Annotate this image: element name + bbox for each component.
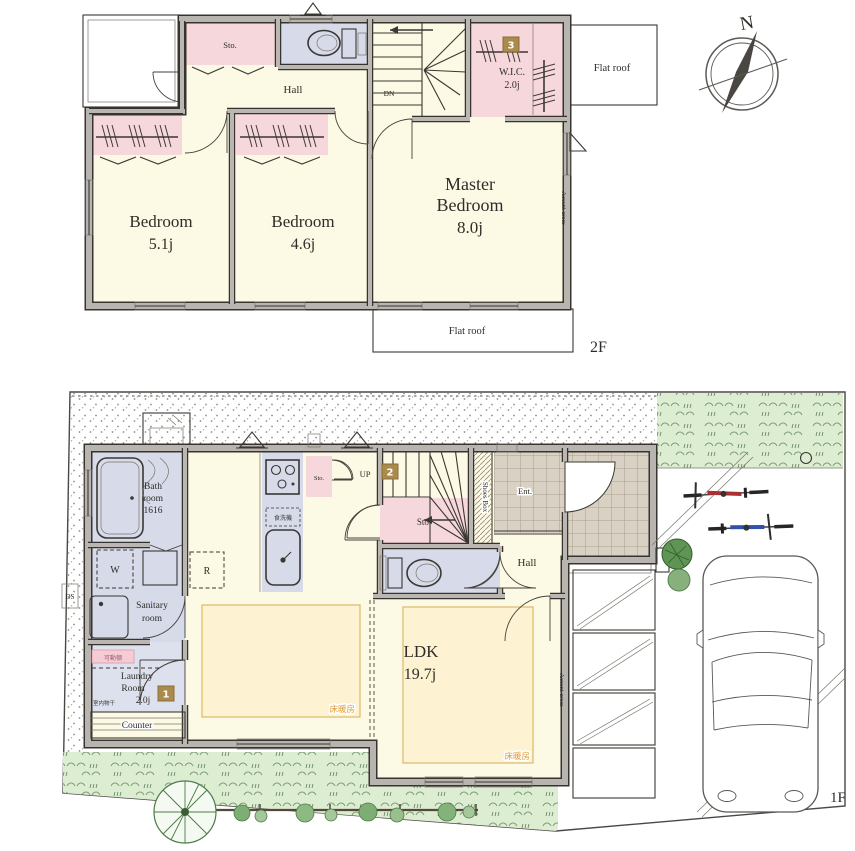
stairs-sto-label: Sto. [417,517,431,527]
sanitary-label-1: Sanitary [136,601,168,611]
flat-roof-bottom-label: Flat roof [449,326,486,337]
floor-plan-2f: Flat roof Flat roof DN [83,3,657,356]
wic-badge-number: 3 [508,41,515,52]
bedroom2-area: 4.6j [291,236,315,253]
1f-hall-label: Hall [518,557,537,569]
floor-heating-left-label: 床暖房 [329,704,355,715]
dn-label: DN [384,89,395,98]
dishwasher-label: 食洗機 [274,514,292,522]
laundry-label-1: Laundry [121,672,153,682]
floor-heating-right [403,607,533,763]
laundry-label-2: Room [121,684,145,694]
bathroom-label-1: Bath [144,482,162,492]
ldk-label: LDK [404,642,440,661]
floor-heating-right-label: 床暖房 [504,751,530,762]
bedroom1-area: 5.1j [149,236,173,253]
compass-north-label: N [738,12,755,35]
movable-shelf-label: 可動棚 [104,654,122,662]
1f-accent-cross-label: Accent cross [558,673,565,707]
sanitary-label-2: room [142,614,163,624]
floor-plan-1f: Bath room 1616 W R Sanitary room 可動棚 Lau… [62,392,846,843]
wic-area: 2.0j [504,80,519,91]
fridge-label: R [204,566,211,577]
entrance-label: Ent. [518,486,532,496]
2f-floor-label: 2F [590,339,607,356]
bathroom-label-2: room [143,494,164,504]
shoes-box-label: Shoes Box [481,482,489,513]
2f-accent-cross-label: Accent cross [560,191,567,225]
ds-label: DS [66,593,75,601]
floor-heating-left [202,605,360,717]
kitchen-sto-label: Sto. [314,475,325,482]
2f-closet-2 [236,114,328,155]
bathroom-label-3: 1616 [144,506,163,516]
1f-toilet-room [380,548,500,596]
ldk-area: 19.7j [404,666,436,683]
master-label-2: Bedroom [437,195,504,215]
2f-sto-label: Sto. [223,40,236,50]
bedroom1-label: Bedroom [129,212,192,231]
wic-label: W.I.C. [499,67,525,78]
counter-label: Counter [122,721,153,731]
up-badge-number: 2 [387,468,394,479]
car [697,556,824,812]
compass: N [699,12,787,113]
bedroom2-label: Bedroom [271,212,334,231]
laundry-badge-number: 1 [163,690,170,701]
2f-hall-label: Hall [284,84,303,96]
bathroom [91,450,185,545]
floorplan-canvas: Flat roof Flat roof DN [0,0,855,851]
floorplan-svg: Flat roof Flat roof DN [0,0,855,851]
master-area: 8.0j [457,218,483,237]
up-label: UP [360,469,371,479]
1f-floor-label: 1F [830,790,846,806]
laundry-area: 2.0j [136,696,151,706]
2f-roof-terrace [83,15,180,107]
indoor-drying-label: 室内物干 [93,699,116,707]
kitchen-counter [262,452,303,592]
master-label-1: Master [445,174,495,194]
flat-roof-right-label: Flat roof [594,63,631,74]
washer-label: W [110,565,120,576]
